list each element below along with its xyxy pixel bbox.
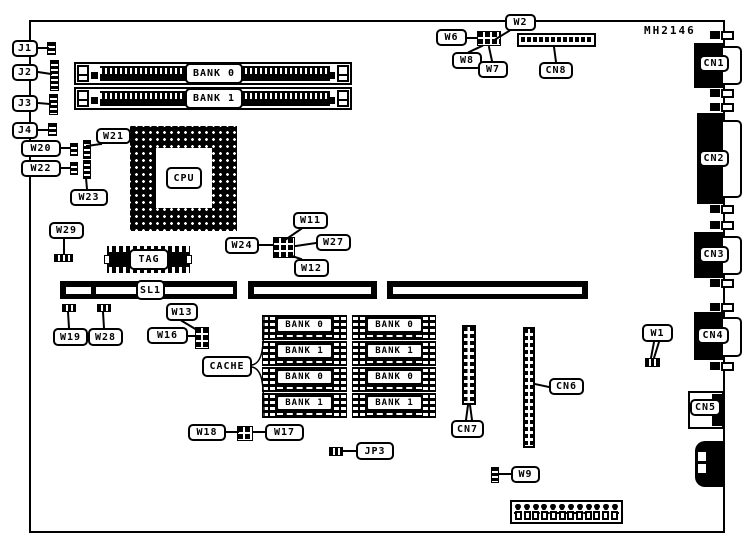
label-w20: W20 (21, 140, 61, 157)
label-cn2: CN2 (699, 150, 729, 167)
label-w16: W16 (147, 327, 188, 344)
label-w28: W28 (88, 328, 123, 346)
label-j3: J3 (12, 95, 38, 112)
label-w29: W29 (49, 222, 84, 239)
label-w24: W24 (225, 237, 259, 254)
label-w9: W9 (511, 466, 540, 483)
board-model-text: MH2146 (644, 24, 696, 37)
label-cn5: CN5 (690, 399, 721, 416)
cache-brace (252, 316, 264, 418)
label-w22: W22 (21, 160, 61, 177)
label-cn4: CN4 (697, 327, 729, 344)
cpu-label: CPU (166, 167, 202, 189)
label-jp3: JP3 (356, 442, 394, 460)
label-cn6: CN6 (549, 378, 584, 395)
label-w6: W6 (436, 29, 467, 46)
label-j1: J1 (12, 40, 38, 57)
label-w21: W21 (96, 128, 131, 144)
label-w17: W17 (265, 424, 304, 441)
slot-sl1-label: SL1 (136, 280, 165, 300)
label-w13: W13 (166, 303, 198, 321)
label-cn7: CN7 (451, 420, 484, 438)
label-cn3: CN3 (699, 246, 729, 263)
label-w19: W19 (53, 328, 88, 346)
tag-label: TAG (129, 249, 169, 270)
label-w23: W23 (70, 189, 108, 206)
label-w2: W2 (505, 14, 536, 31)
label-w1: W1 (642, 324, 673, 342)
label-j4: J4 (12, 122, 38, 139)
label-cn1: CN1 (699, 55, 729, 72)
label-cache: CACHE (202, 356, 252, 377)
label-w12: W12 (294, 259, 329, 277)
label-w27: W27 (316, 234, 351, 251)
label-j2: J2 (12, 64, 38, 81)
label-w7: W7 (478, 61, 508, 78)
label-w18: W18 (188, 424, 226, 441)
label-cn8: CN8 (539, 62, 573, 79)
motherboard-diagram: MH2146 BANK 0 (0, 0, 747, 541)
label-w11: W11 (293, 212, 328, 229)
